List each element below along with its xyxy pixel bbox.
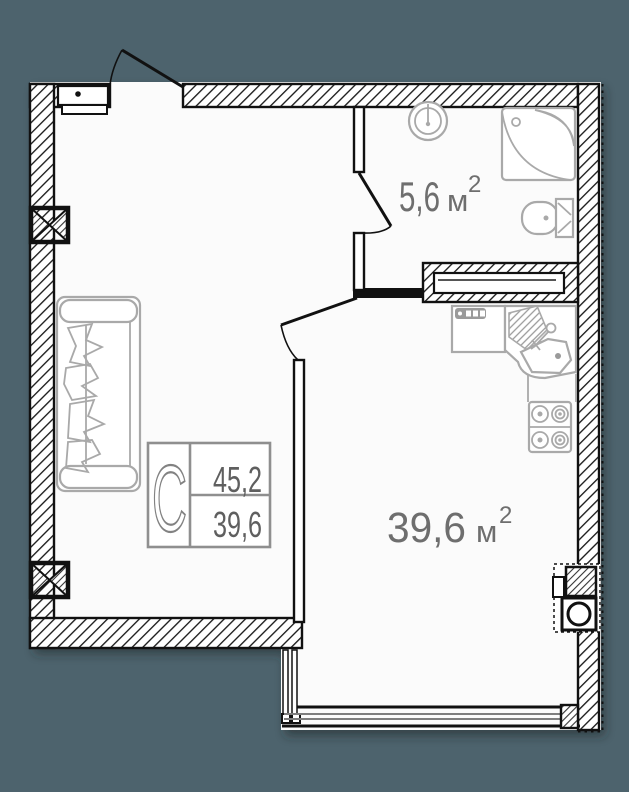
closet-knob	[75, 91, 81, 97]
wall-closet	[58, 86, 108, 114]
living-area-value: 39,6	[387, 504, 466, 552]
toilet-icon	[522, 199, 573, 237]
wall-right	[578, 84, 599, 730]
partition-kitchen	[294, 360, 304, 622]
sofa-icon	[57, 297, 140, 491]
shower-icon	[502, 108, 575, 180]
partition-bathroom-lower	[354, 233, 364, 290]
wall-top-right	[183, 84, 578, 107]
living-area-sup: 2	[499, 502, 512, 529]
partition-bathroom-upper	[354, 107, 364, 172]
living-area-unit: м	[476, 514, 497, 549]
corner-post	[561, 705, 578, 728]
bathroom-area-sup: 2	[468, 171, 481, 198]
bathroom-area-unit: м	[447, 183, 468, 218]
washing-machine-icon	[452, 306, 505, 352]
bathroom-sink-icon	[409, 102, 447, 140]
area-legend: С 45,2 39,6	[148, 443, 270, 552]
vent-shaft-icon	[553, 564, 600, 632]
stove-icon	[529, 402, 571, 452]
legend-living-area: 39,6	[213, 504, 262, 545]
legend-type: С	[152, 446, 187, 552]
legend-total-area: 45,2	[213, 459, 262, 500]
floor-plan: 5,6 м 2 39,6 м 2 С 45,2 39,6	[0, 0, 629, 792]
bathroom-area-value: 5,6	[399, 173, 440, 220]
wall-bottom-left	[30, 618, 302, 648]
wardrobe-icon	[434, 273, 564, 293]
